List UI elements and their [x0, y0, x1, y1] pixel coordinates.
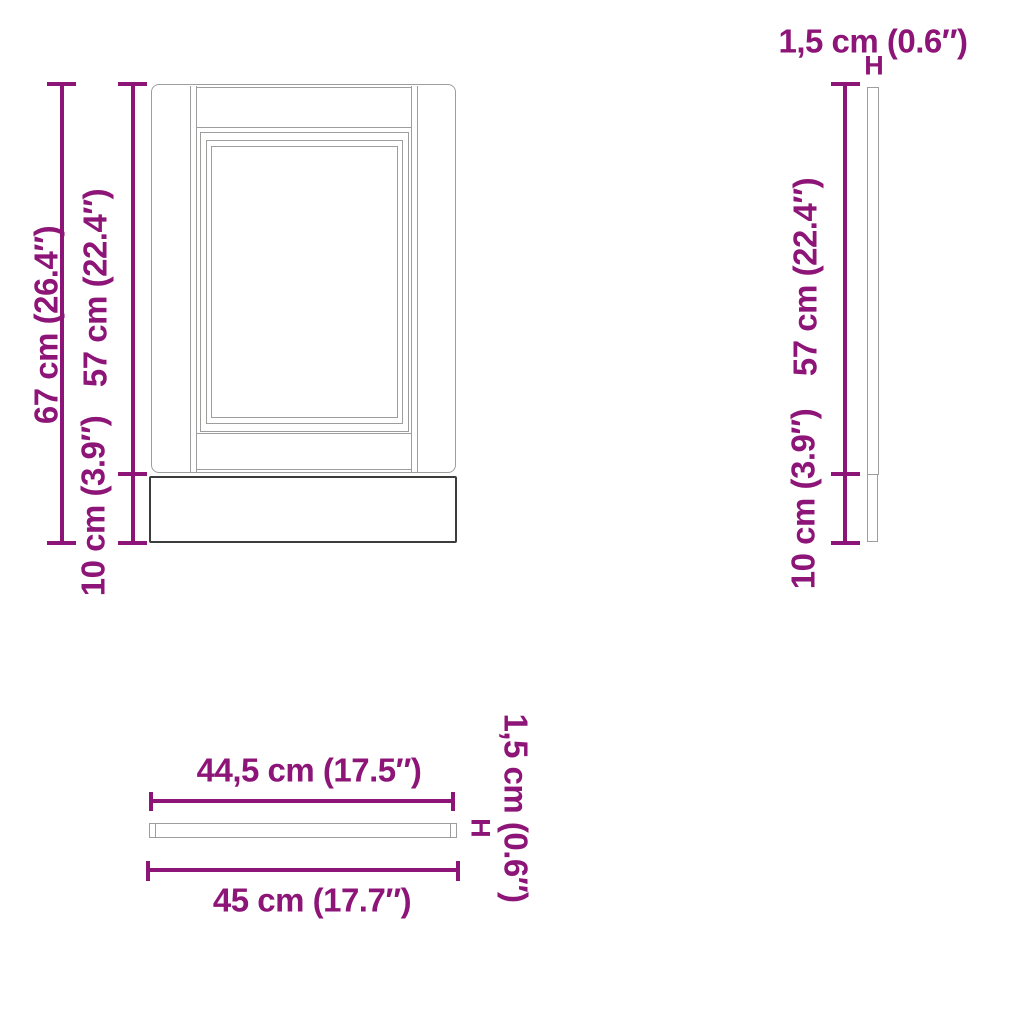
side-door-height-tick-top — [831, 82, 860, 86]
plinth-front-outline — [149, 476, 457, 543]
side-thickness-bracket-icon: H — [864, 53, 884, 80]
side-door-height-tick-middle — [831, 472, 860, 476]
side-plinth-height-label: 10 cm (3.9″) — [787, 409, 820, 589]
top-front-width-tick-left — [149, 792, 153, 811]
side-plinth-height-tick-bottom — [831, 541, 860, 545]
top-total-width-label: 45 cm (17.7″) — [213, 884, 411, 917]
top-thickness-bracket-icon: H — [467, 818, 494, 838]
plinth-side-outline — [867, 474, 878, 542]
door-right-stile-line-inner — [411, 86, 412, 472]
top-total-width-dim-line — [148, 868, 458, 872]
top-front-width-label: 44,5 cm (17.5″) — [197, 754, 422, 787]
door-left-stile-line-outer — [190, 86, 191, 472]
front-plinth-height-tick-bottom — [118, 541, 147, 545]
door-top-rail-inner-line — [197, 87, 412, 88]
panel-top-end-cap-right — [450, 824, 451, 837]
front-plinth-height-label: 10 cm (3.9″) — [77, 416, 110, 596]
front-door-height-tick-middle — [118, 472, 147, 476]
door-left-stile-line-inner — [196, 86, 197, 472]
front-total-height-tick-top — [47, 82, 76, 86]
door-bottom-rail-line — [197, 433, 412, 434]
top-front-width-tick-right — [451, 792, 455, 811]
top-thickness-label: 1,5 cm (0.6″) — [500, 713, 533, 902]
door-side-outline — [867, 87, 879, 475]
top-total-width-tick-right — [456, 861, 460, 881]
door-right-stile-line-outer — [417, 86, 418, 472]
door-panel-frame-inner — [211, 146, 398, 418]
side-door-height-label: 57 cm (22.4″) — [789, 178, 822, 376]
front-total-height-label: 67 cm (26.4″) — [30, 226, 63, 424]
front-total-height-tick-bottom — [47, 541, 76, 545]
front-door-height-label: 57 cm (22.4″) — [79, 189, 112, 387]
top-front-width-dim-line — [151, 799, 453, 803]
top-total-width-tick-left — [146, 861, 150, 881]
door-top-rail-line — [197, 127, 412, 128]
dimension-diagram: 67 cm (26.4″) 57 cm (22.4″) 10 cm (3.9″)… — [0, 0, 1024, 1024]
panel-top-outline — [149, 823, 457, 838]
door-bottom-rail-inner-line — [197, 469, 412, 470]
front-door-height-tick-top — [118, 82, 147, 86]
panel-top-end-cap-left — [155, 824, 156, 837]
